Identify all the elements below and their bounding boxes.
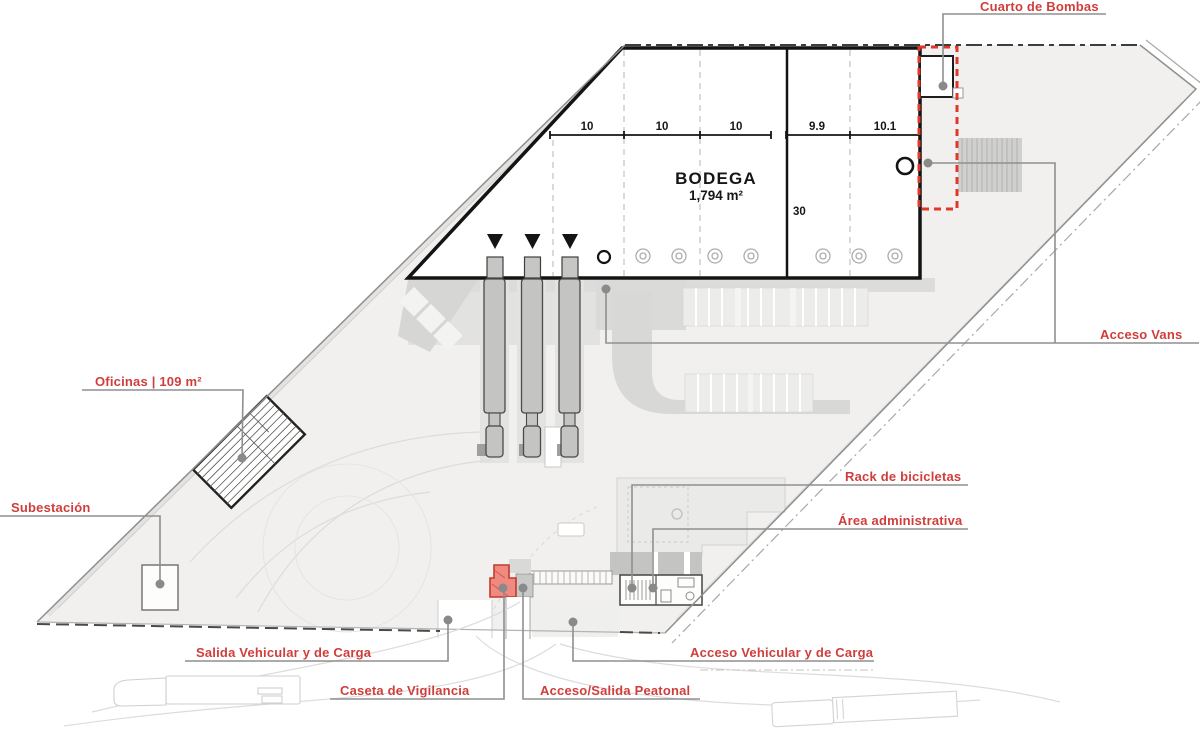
bay-dim-4: 9.9 [809,121,825,133]
site-plan-drawing: BODEGA 1,794 m² 10 10 10 9.9 10.1 30 Cua… [0,0,1200,749]
label-salida-vehicular: Salida Vehicular y de Carga [196,645,372,660]
label-area-administrativa: Área administrativa [838,513,963,528]
bodega-building [408,48,920,278]
dock-trucks [484,234,580,457]
bay-dim-1: 10 [581,121,594,133]
depth-dim: 30 [793,206,806,218]
canopy-gap [684,552,690,575]
label-acceso-vans: Acceso Vans [1100,327,1182,342]
street-truck-right [771,691,957,727]
street-truck-left [114,676,300,706]
site-plan: BODEGA 1,794 m² 10 10 10 9.9 10.1 30 Cua… [0,0,1200,749]
caseta-canopy [509,559,531,573]
label-oficinas: Oficinas | 109 m² [95,374,202,389]
label-rack-bicicletas: Rack de bicicletas [845,469,961,484]
parking-upper-row [683,288,868,326]
label-cuarto-de-bombas: Cuarto de Bombas [980,0,1099,14]
bodega-name: BODEGA [675,169,757,188]
bay-dim-2: 10 [656,121,669,133]
bay-dim-3: 10 [730,121,743,133]
label-subestacion: Subestación [11,500,91,515]
parking-lower-row [685,374,813,412]
label-acceso-peatonal: Acceso/Salida Peatonal [540,683,690,698]
bodega-area: 1,794 m² [689,188,744,203]
bay-dim-5: 10.1 [874,121,897,133]
label-acceso-vehicular: Acceso Vehicular y de Carga [690,645,874,660]
label-caseta-vigilancia: Caseta de Vigilancia [340,683,470,698]
walkway-hatch [530,571,612,584]
pump-room-walls [920,56,953,97]
